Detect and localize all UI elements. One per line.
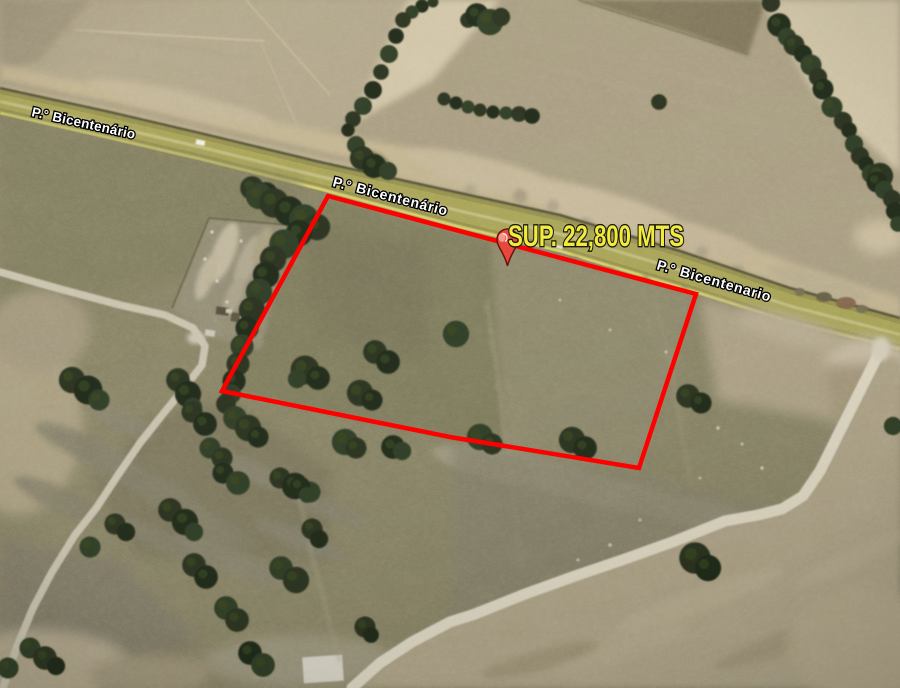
svg-text:SUP. 22,800 MTS: SUP. 22,800 MTS <box>508 220 684 253</box>
